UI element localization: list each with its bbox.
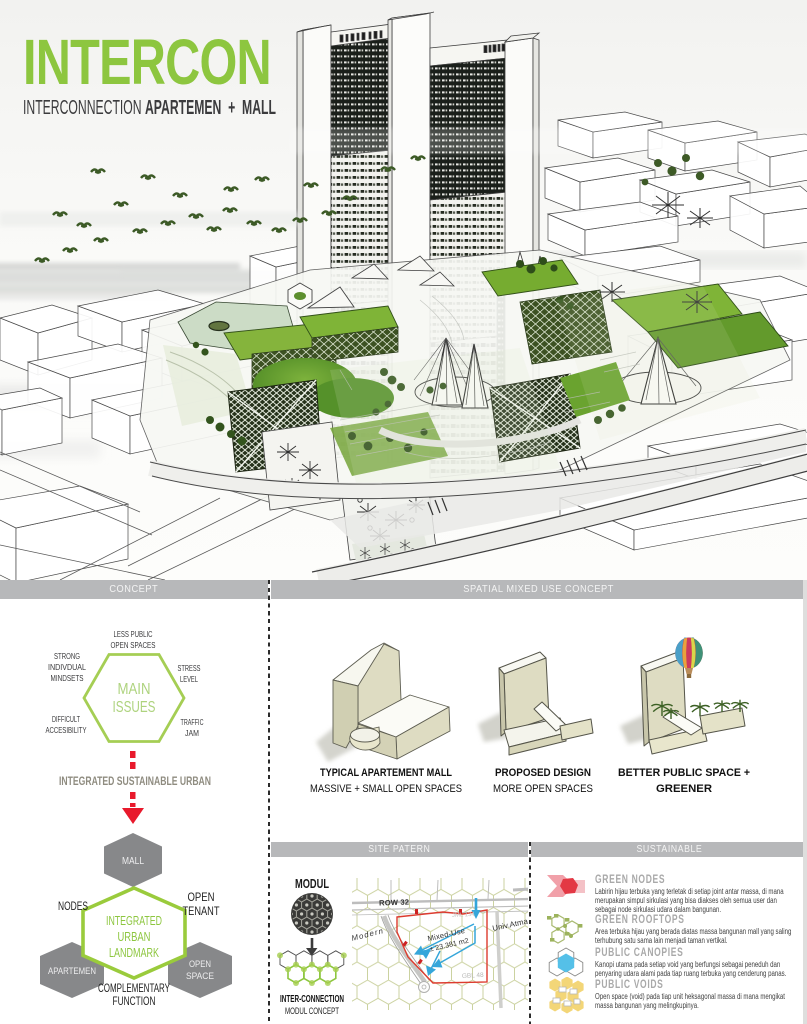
svg-text:JML 134: JML 134 [452, 912, 476, 919]
svg-text:STRESS: STRESS [178, 663, 201, 673]
svg-text:GBL 48: GBL 48 [462, 972, 485, 980]
svg-text:BETTER PUBLIC SPACE +: BETTER PUBLIC SPACE + [618, 767, 750, 779]
svg-text:TENANT: TENANT [183, 904, 221, 918]
svg-text:DIFFICULT: DIFFICULT [52, 714, 80, 724]
svg-text:GREENER: GREENER [656, 783, 712, 795]
svg-text:PROPOSED DESIGN: PROPOSED DESIGN [495, 767, 591, 779]
svg-text:LANDMARK: LANDMARK [109, 946, 159, 960]
svg-text:ISSUES: ISSUES [113, 699, 156, 716]
svg-text:FUNCTION: FUNCTION [113, 994, 156, 1008]
svg-text:MINDSETS: MINDSETS [51, 673, 84, 683]
svg-text:LESS PUBLIC: LESS PUBLIC [114, 629, 153, 639]
svg-text:TRAFFIC: TRAFFIC [181, 717, 204, 727]
svg-text:APARTEMEN: APARTEMEN [48, 966, 96, 977]
svg-text:URBAN: URBAN [118, 930, 151, 944]
svg-text:ACCESIBILITY: ACCESIBILITY [46, 725, 87, 735]
svg-text:MALL: MALL [122, 856, 144, 867]
svg-text:STRONG: STRONG [54, 651, 80, 661]
svg-text:OPEN: OPEN [189, 959, 211, 970]
svg-text:JAM: JAM [185, 728, 199, 738]
svg-text:TYPICAL APARTEMENT MALL: TYPICAL APARTEMENT MALL [320, 767, 452, 779]
svg-text:INDIVDUAL: INDIVDUAL [48, 662, 86, 672]
svg-text:COMPLEMENTARY: COMPLEMENTARY [98, 981, 170, 995]
svg-text:MASSIVE + SMALL OPEN SPACES: MASSIVE + SMALL OPEN SPACES [310, 783, 462, 795]
svg-text:OPEN: OPEN [188, 890, 215, 904]
svg-text:LEVEL: LEVEL [180, 674, 198, 684]
svg-text:SPACE: SPACE [186, 971, 214, 982]
svg-text:MODUL: MODUL [295, 876, 329, 891]
svg-text:MAIN: MAIN [118, 681, 151, 698]
svg-text:INTEGRATED SUSTAINABLE URBAN: INTEGRATED SUSTAINABLE URBAN [59, 776, 211, 788]
svg-text:INTEGRATED: INTEGRATED [106, 914, 162, 928]
svg-text:MORE OPEN SPACES: MORE OPEN SPACES [493, 783, 593, 795]
svg-text:INTER-CONNECTION: INTER-CONNECTION [280, 994, 344, 1005]
svg-text:ROW 32: ROW 32 [379, 898, 409, 908]
svg-text:NODES: NODES [58, 899, 88, 913]
svg-text:OPEN SPACES: OPEN SPACES [111, 640, 156, 650]
svg-text:MODUL CONCEPT: MODUL CONCEPT [285, 1006, 339, 1017]
